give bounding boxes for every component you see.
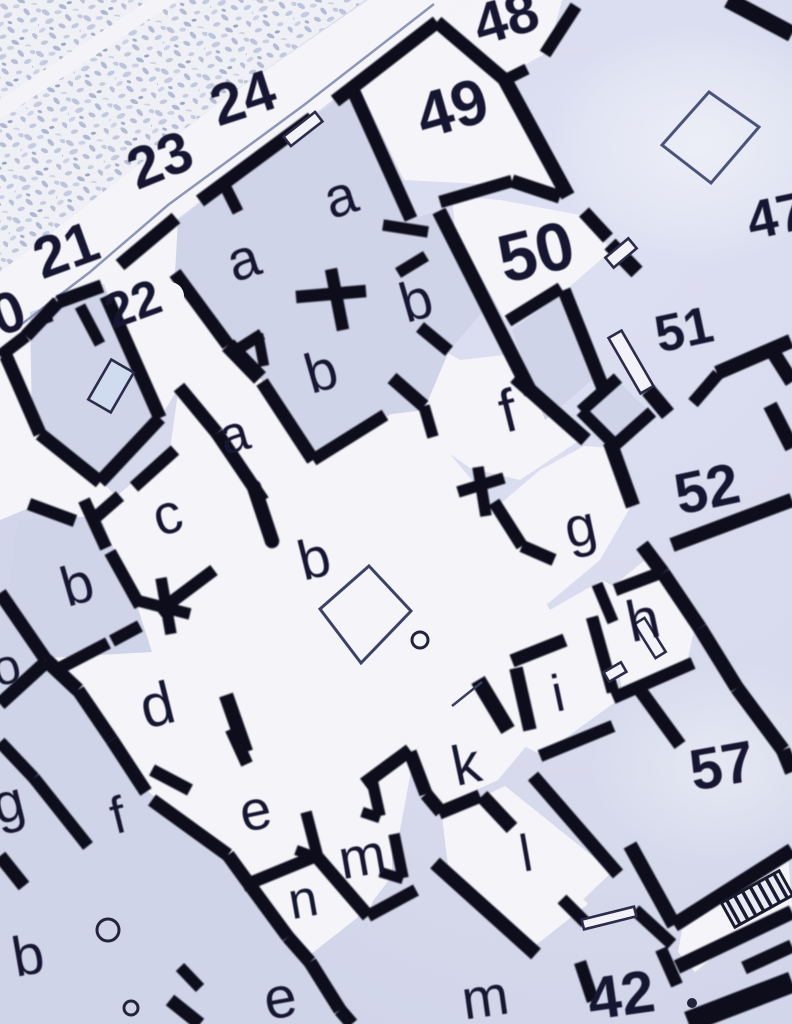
svg-text:42: 42 — [583, 957, 658, 1024]
svg-text:51: 51 — [650, 296, 719, 365]
svg-text:57: 57 — [685, 728, 760, 803]
svg-text:52: 52 — [669, 451, 746, 528]
svg-text:m: m — [458, 963, 513, 1024]
